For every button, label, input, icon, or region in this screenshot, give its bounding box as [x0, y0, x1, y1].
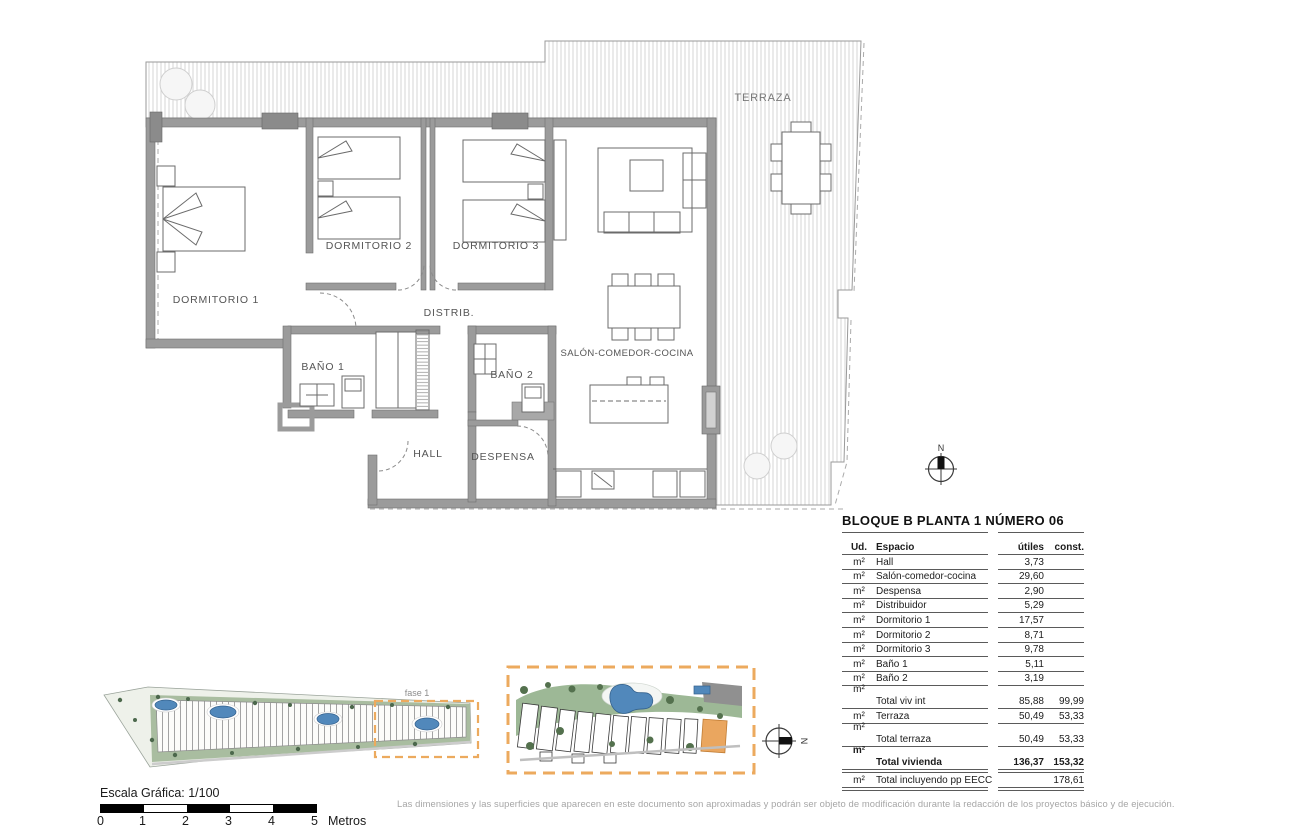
area-table: BLOQUE B PLANTA 1 NÚMERO 06 Ud. Espacio … [842, 513, 1084, 791]
north-needle [779, 737, 792, 745]
kitchen-counter [553, 469, 707, 497]
label-hall: HALL [413, 448, 442, 460]
cell-const: 99,99 [1044, 684, 1084, 709]
disclaimer-text: Las dimensiones y las superficies que ap… [397, 798, 1093, 809]
cell-espacio: Total viv int [876, 684, 988, 709]
north-label: N [938, 443, 945, 453]
cell-const: 153,32 [1044, 745, 1084, 770]
label-dormitorio-3: DORMITORIO 3 [453, 240, 539, 252]
cell-const: 53,33 [1044, 722, 1084, 747]
table-row-total-terraza: m² Total terraza 50,49 53,33 [842, 724, 1084, 747]
scale-ticks: 0 1 2 3 4 5 Metros [100, 814, 400, 830]
scale-bar: Escala Gráfica: 1/100 0 1 2 3 4 5 Metros [100, 786, 400, 830]
site-plan-detail [508, 667, 754, 773]
tick-5: 5 [311, 814, 318, 828]
fase1-label: fase 1 [405, 688, 430, 698]
north-label: N [799, 738, 809, 745]
scale-ruler [100, 804, 317, 813]
dining-table-icon [608, 274, 680, 340]
tree-icon [160, 68, 797, 479]
label-dormitorio-2: DORMITORIO 2 [326, 240, 412, 252]
table-row-total-vivienda: m² Total vivienda 136,37 153,32 [842, 747, 1084, 770]
kitchen-island-icon [590, 377, 668, 423]
label-dormitorio-1: DORMITORIO 1 [173, 294, 259, 306]
cell-espacio: Total terraza [876, 722, 988, 747]
tick-1: 1 [139, 814, 146, 828]
label-terraza: TERRAZA [735, 92, 792, 104]
double-bed-icon [157, 166, 245, 272]
table-end-line [842, 788, 1084, 791]
north-needle [938, 457, 945, 470]
cell-ud: m² [842, 744, 876, 770]
cell-utiles: 85,88 [998, 684, 1044, 709]
tick-4: 4 [268, 814, 275, 828]
table-row-total-viv: m² Total viv int 85,88 99,99 [842, 686, 1084, 709]
label-bano-2: BAÑO 2 [490, 368, 533, 381]
cell-ud: m² [842, 683, 876, 709]
label-distribuidor: DISTRIB. [424, 307, 475, 319]
site-plan-overview: fase 1 [104, 687, 478, 767]
small-pool-icon [694, 686, 710, 694]
area-table-title: BLOQUE B PLANTA 1 NÚMERO 06 [842, 513, 1084, 528]
label-salon: SALÓN-COMEDOR-COCINA [560, 348, 693, 359]
floor-plan: TERRAZA DORMITORIO 1 DORMITORIO 2 DORMIT… [146, 41, 864, 509]
plan-sheet: TERRAZA DORMITORIO 1 DORMITORIO 2 DORMIT… [0, 0, 1290, 840]
single-beds-icon [318, 137, 400, 239]
label-bano-1: BAÑO 1 [301, 360, 344, 373]
site-north-compass: N [762, 724, 809, 758]
col-header-ud: Ud. [842, 532, 876, 555]
col-header-utiles: útiles [998, 532, 1044, 555]
scale-unit: Metros [328, 814, 366, 828]
tick-0: 0 [97, 814, 104, 828]
north-compass: N [925, 443, 957, 485]
col-header-espacio: Espacio [876, 532, 988, 555]
cell-utiles: 50,49 [998, 722, 1044, 747]
tick-2: 2 [182, 814, 189, 828]
label-despensa: DESPENSA [471, 451, 535, 463]
col-header-const: const. [1044, 532, 1084, 555]
drawing-canvas: TERRAZA DORMITORIO 1 DORMITORIO 2 DORMIT… [0, 0, 1290, 840]
living-room-furniture [598, 148, 706, 233]
door-arc [320, 264, 548, 471]
tick-3: 3 [225, 814, 232, 828]
scale-label: Escala Gráfica: 1/100 [100, 786, 400, 800]
cell-utiles: 136,37 [998, 745, 1044, 770]
table-header-row: Ud. Espacio útiles const. [842, 535, 1084, 555]
terrace-deck [146, 41, 861, 505]
cell-espacio: Total vivienda [876, 745, 988, 770]
